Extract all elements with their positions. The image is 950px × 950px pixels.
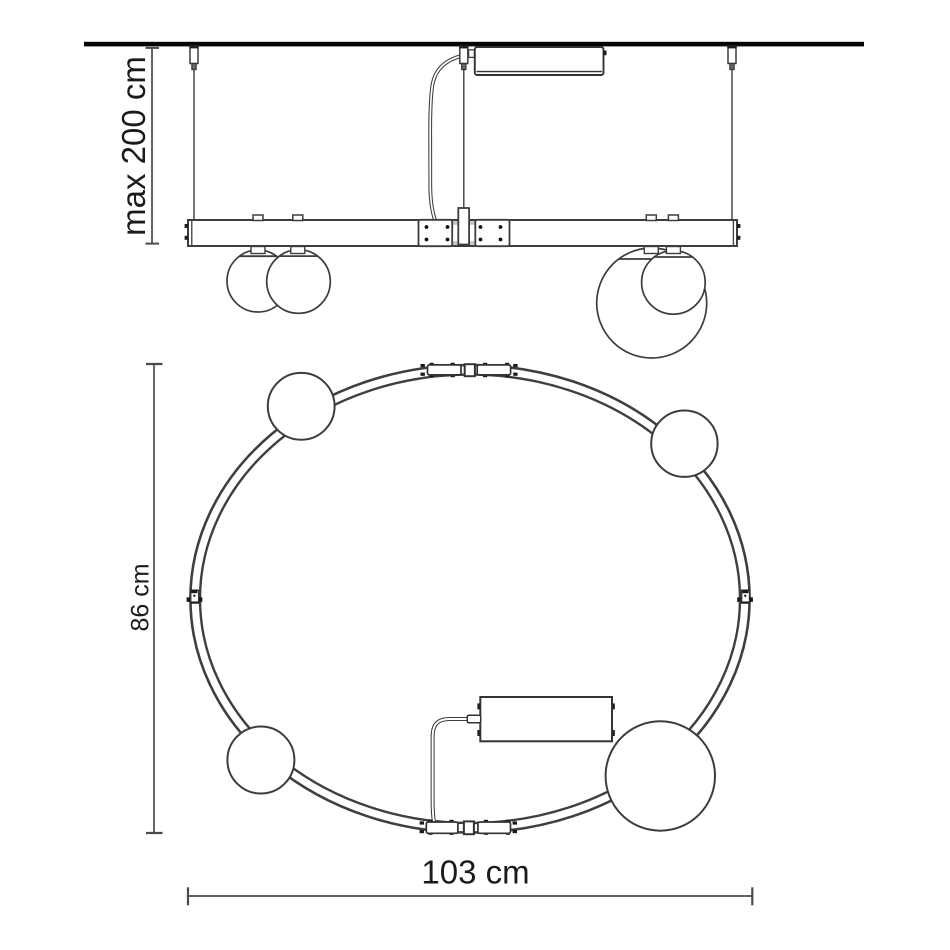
- svg-text:max 200 cm: max 200 cm: [115, 56, 152, 236]
- svg-text:86 cm: 86 cm: [127, 563, 155, 631]
- svg-text:103 cm: 103 cm: [421, 854, 529, 891]
